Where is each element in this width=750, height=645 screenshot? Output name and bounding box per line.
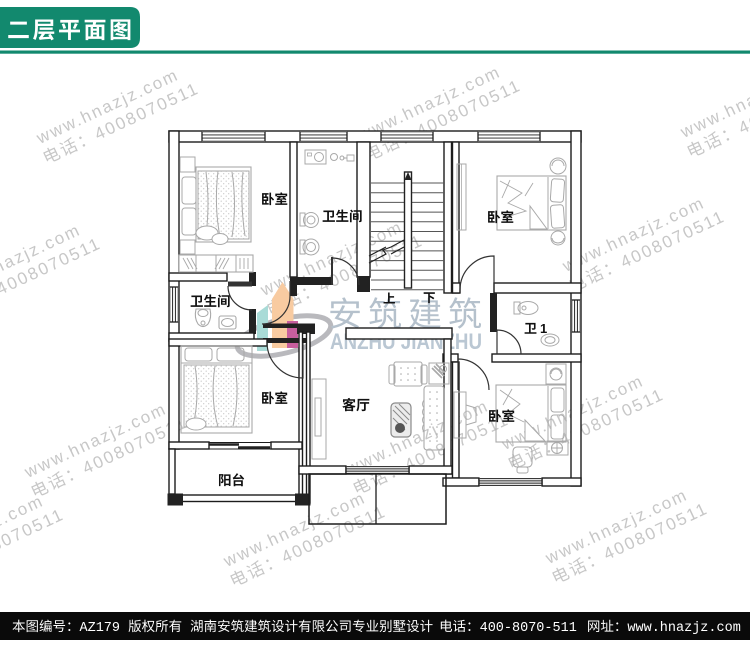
- svg-text:AZ179: AZ179: [80, 621, 121, 636]
- svg-text:www.hnazjz.com: www.hnazjz.com: [627, 621, 740, 636]
- svg-text:1: 1: [540, 321, 547, 336]
- svg-text:400-8070-511: 400-8070-511: [480, 621, 577, 636]
